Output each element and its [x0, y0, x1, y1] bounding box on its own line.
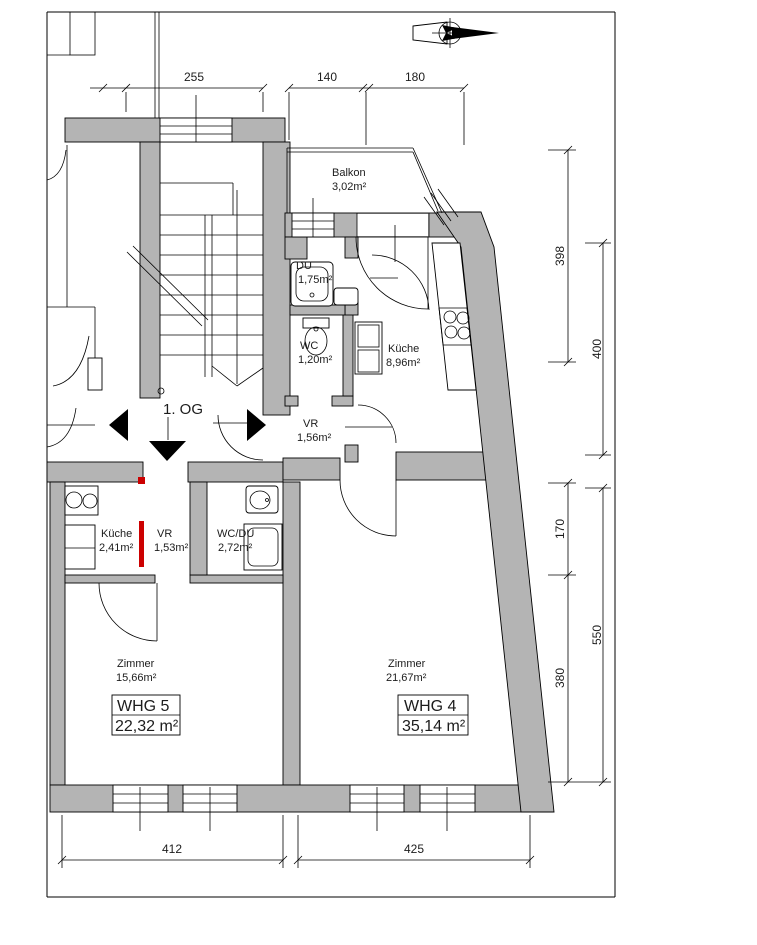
room-label-kueche-whg4: Küche: [388, 343, 419, 355]
dim-right-398: 398: [553, 246, 567, 266]
kitchen-sink-whg5: [65, 486, 98, 569]
room-area-vr-whg4: 1,56m²: [297, 432, 332, 444]
stairwell-window: [160, 95, 232, 142]
facade-window-4: [420, 785, 475, 831]
apartment-box-whg4: WHG 4 35,14 m²: [398, 695, 468, 735]
dim-top-180: 180: [405, 70, 425, 84]
dim-right-550: 550: [590, 625, 604, 645]
floorplan-page: 255 140 180 398 400 170 550 380 412 425 …: [0, 0, 757, 945]
room-area-du-whg4: 1,75m²: [298, 274, 333, 286]
room-area-kueche-whg4: 8,96m²: [386, 357, 421, 369]
room-area-balkon: 3,02m²: [332, 181, 367, 193]
balcony-window: [292, 198, 334, 237]
dim-top-140: 140: [317, 70, 337, 84]
room-label-vr-whg4: VR: [303, 418, 318, 430]
room-label-kueche-whg5: Küche: [101, 528, 132, 540]
balcony-door-opening: [357, 213, 429, 262]
room-label-du-whg4: DU: [296, 260, 312, 272]
toilet-whg5: [246, 486, 278, 513]
facade-window-2: [183, 785, 237, 831]
apartment-area-whg5: 22,32 m²: [115, 718, 179, 735]
dim-bottom-425: 425: [404, 842, 424, 856]
room-label-zimmer-whg4: Zimmer: [388, 658, 426, 670]
room-area-kueche-whg5: 2,41m²: [99, 542, 134, 554]
room-area-wcdu-whg5: 2,72m²: [218, 542, 253, 554]
room-label-vr-whg5: VR: [157, 528, 172, 540]
dim-right-400: 400: [590, 339, 604, 359]
dim-right-170: 170: [553, 519, 567, 539]
arrow-down-icon: [149, 441, 186, 461]
dim-right-380: 380: [553, 668, 567, 688]
new-construction-marks: [138, 477, 145, 567]
room-label-wc-whg4: WC: [300, 340, 318, 352]
room-area-zimmer-whg4: 21,67m²: [386, 672, 427, 684]
floor-label: 1. OG: [163, 401, 203, 418]
dim-bottom-412: 412: [162, 842, 182, 856]
room-label-balkon: Balkon: [332, 167, 366, 179]
apartment-label-whg5: WHG 5: [117, 698, 170, 715]
facade-window-1: [113, 785, 168, 831]
room-label-zimmer-whg5: Zimmer: [117, 658, 155, 670]
north-arrow-icon: [413, 18, 499, 48]
kitchen-sink-whg4: [355, 322, 382, 374]
facade-window-3: [350, 785, 404, 831]
arrow-left-icon: [109, 409, 128, 441]
room-label-wcdu-whg5: WC/DU: [217, 528, 254, 540]
room-area-wc-whg4: 1,20m²: [298, 354, 333, 366]
room-area-zimmer-whg5: 15,66m²: [116, 672, 157, 684]
floorplan-drawing: 255 140 180 398 400 170 550 380 412 425 …: [0, 0, 757, 945]
room-area-vr-whg5: 1,53m²: [154, 542, 189, 554]
apartment-area-whg4: 35,14 m²: [402, 718, 466, 735]
apartment-box-whg5: WHG 5 22,32 m²: [112, 695, 180, 735]
apartment-label-whg4: WHG 4: [404, 698, 457, 715]
dim-top-255: 255: [184, 70, 204, 84]
